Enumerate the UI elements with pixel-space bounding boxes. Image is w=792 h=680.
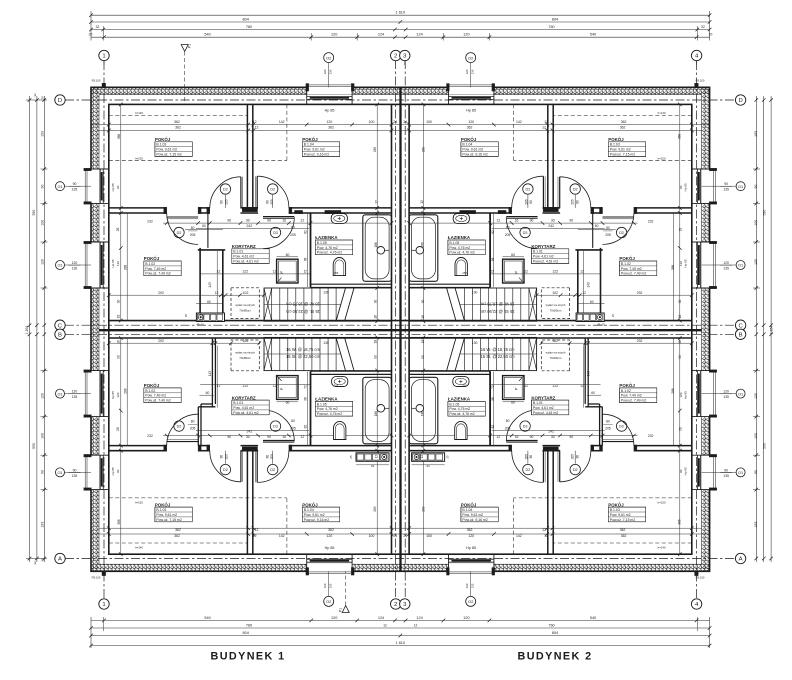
svg-text:232: 232	[648, 220, 654, 224]
svg-text:38: 38	[491, 397, 495, 401]
svg-text:590: 590	[32, 210, 36, 216]
svg-text:Hp 85: Hp 85	[466, 109, 476, 113]
svg-text:269: 269	[422, 506, 426, 512]
svg-text:80: 80	[219, 200, 223, 204]
svg-text:12: 12	[212, 339, 216, 343]
svg-text:12: 12	[420, 455, 424, 459]
svg-text:wyłaz na strych: wyłaz na strych	[235, 303, 255, 307]
svg-text:120: 120	[116, 261, 120, 266]
svg-text:POKÓJ: POKÓJ	[155, 502, 171, 507]
svg-text:B: B	[58, 332, 62, 338]
svg-text:Pow.uż. 4,76 m2: Pow.uż. 4,76 m2	[317, 412, 343, 416]
svg-text:205: 205	[224, 454, 228, 460]
svg-text:A: A	[739, 557, 743, 563]
svg-text:20: 20	[41, 96, 45, 100]
svg-text:B.1.04: B.1.04	[462, 143, 472, 147]
svg-text:12: 12	[544, 534, 548, 538]
svg-text:120: 120	[465, 583, 469, 588]
svg-text:242: 242	[548, 430, 554, 434]
svg-text:12: 12	[300, 219, 304, 223]
svg-text:D2: D2	[573, 188, 578, 192]
svg-text:12: 12	[544, 120, 548, 124]
svg-text:ŁAZIENKA: ŁAZIENKA	[315, 397, 338, 402]
svg-text:135: 135	[471, 583, 475, 588]
svg-text:16 W. @ 18,75 cm: 16 W. @ 18,75 cm	[481, 347, 515, 352]
svg-text:205: 205	[505, 427, 511, 431]
svg-text:60: 60	[591, 391, 595, 395]
svg-text:Pow. 4,61 m2: Pow. 4,61 m2	[233, 406, 254, 410]
svg-text:90: 90	[754, 185, 758, 189]
svg-text:120: 120	[468, 534, 474, 538]
svg-text:Pow. 9,61 m2: Pow. 9,61 m2	[462, 148, 483, 152]
svg-text:90: 90	[267, 219, 271, 223]
svg-text:12: 12	[217, 270, 221, 274]
svg-text:100: 100	[41, 220, 45, 226]
svg-text:16: 16	[515, 435, 519, 439]
svg-text:90: 90	[373, 300, 377, 304]
svg-text:16: 16	[515, 219, 519, 223]
svg-text:Pow. 4,76 m2: Pow. 4,76 m2	[317, 407, 338, 411]
svg-text:D2: D2	[619, 425, 624, 429]
svg-text:80: 80	[291, 419, 295, 423]
svg-text:ŁAZIENKA: ŁAZIENKA	[315, 235, 338, 240]
svg-text:120: 120	[327, 534, 333, 538]
svg-text:760: 760	[548, 624, 554, 628]
svg-text:269: 269	[373, 147, 377, 153]
svg-text:193: 193	[41, 131, 45, 137]
svg-text:Hp 85: Hp 85	[111, 183, 115, 191]
svg-text:Hp 85: Hp 85	[111, 259, 115, 267]
svg-text:540: 540	[204, 616, 210, 620]
svg-text:60: 60	[595, 224, 599, 228]
svg-text:135: 135	[329, 583, 333, 588]
svg-text:38: 38	[491, 258, 495, 262]
svg-text:130: 130	[323, 291, 329, 295]
svg-text:120: 120	[116, 392, 120, 397]
svg-text:193: 193	[41, 522, 45, 528]
svg-text:B: B	[739, 332, 743, 338]
svg-text:O2: O2	[468, 55, 474, 60]
svg-text:B.1.02: B.1.02	[621, 262, 631, 266]
svg-text:366: 366	[677, 134, 681, 140]
svg-text:Pow. 9,61 m2: Pow. 9,61 m2	[156, 513, 177, 517]
svg-text:D: D	[58, 98, 62, 104]
svg-text:205: 205	[524, 454, 528, 460]
svg-text:120: 120	[679, 392, 683, 397]
svg-text:Pow.uż. 7,15 m2: Pow.uż. 7,15 m2	[610, 153, 636, 157]
svg-text:D2: D2	[573, 468, 578, 472]
svg-text:90: 90	[267, 435, 271, 439]
svg-text:80: 80	[606, 420, 610, 424]
svg-text:135: 135	[723, 266, 729, 270]
svg-text:Pow. 7,49 m2: Pow. 7,49 m2	[145, 394, 166, 398]
svg-text:90: 90	[41, 470, 45, 474]
svg-text:120: 120	[679, 261, 683, 266]
svg-text:12: 12	[253, 120, 257, 124]
svg-text:48x19: 48x19	[597, 322, 605, 326]
svg-text:242: 242	[247, 224, 253, 228]
svg-text:18: 18	[373, 340, 377, 344]
svg-text:255: 255	[462, 383, 467, 387]
svg-text:90: 90	[73, 182, 77, 186]
svg-text:Pow. 9,61 m2: Pow. 9,61 m2	[610, 513, 631, 517]
svg-text:Hp 85: Hp 85	[684, 467, 688, 475]
svg-text:122: 122	[552, 384, 558, 388]
svg-text:B.1.05: B.1.05	[317, 402, 327, 406]
svg-text:Hp 85: Hp 85	[466, 546, 476, 550]
svg-text:80: 80	[265, 455, 269, 459]
svg-text:24: 24	[393, 534, 397, 538]
svg-text:B.1.02: B.1.02	[145, 262, 155, 266]
svg-text:60: 60	[590, 300, 594, 304]
svg-text:18: 18	[678, 315, 682, 319]
svg-text:Pow. 9,61 m2: Pow. 9,61 m2	[610, 148, 631, 152]
svg-text:82: 82	[304, 230, 308, 234]
svg-text:32: 32	[33, 93, 37, 97]
svg-text:130: 130	[323, 341, 329, 345]
svg-text:90: 90	[421, 300, 425, 304]
svg-text:205: 205	[224, 199, 228, 205]
svg-text:80: 80	[506, 419, 510, 423]
svg-text:60: 60	[286, 400, 290, 404]
svg-text:Pow.uż. 7,49 m2: Pow.uż. 7,49 m2	[621, 272, 647, 276]
svg-text:362: 362	[175, 528, 181, 532]
svg-text:292: 292	[637, 339, 643, 343]
svg-text:25: 25	[184, 314, 188, 318]
svg-text:20: 20	[709, 33, 713, 37]
svg-text:90: 90	[754, 470, 758, 474]
svg-text:18: 18	[421, 340, 425, 344]
svg-text:R5:100: R5:100	[92, 79, 101, 83]
svg-text:90: 90	[116, 185, 120, 189]
svg-text:Hp 85: Hp 85	[684, 259, 688, 267]
svg-text:205: 205	[570, 199, 574, 205]
svg-text:P: P	[514, 271, 519, 274]
svg-text:30: 30	[551, 435, 555, 439]
svg-text:90: 90	[73, 468, 77, 472]
svg-text:12: 12	[582, 291, 586, 295]
svg-text:120: 120	[323, 69, 327, 74]
svg-text:20: 20	[89, 33, 93, 37]
svg-text:70x80cm: 70x80cm	[550, 309, 562, 313]
svg-text:D2: D2	[223, 188, 228, 192]
svg-text:24: 24	[403, 120, 407, 124]
svg-text:186: 186	[374, 411, 378, 417]
svg-text:205: 205	[605, 233, 611, 237]
svg-text:O1: O1	[738, 392, 743, 396]
svg-text:90: 90	[679, 469, 683, 473]
svg-text:90: 90	[227, 219, 231, 223]
svg-text:P: P	[514, 387, 519, 390]
svg-text:B.1.04: B.1.04	[304, 143, 314, 147]
svg-text:120: 120	[72, 261, 78, 265]
svg-text:135: 135	[72, 395, 78, 399]
svg-text:Pow.uż. 9,16 m2: Pow.uż. 9,16 m2	[304, 518, 330, 522]
svg-text:255: 255	[334, 383, 339, 387]
svg-text:16 W. @ 18,75 cm: 16 W. @ 18,75 cm	[286, 302, 320, 307]
svg-text:804: 804	[243, 631, 249, 635]
svg-text:12: 12	[420, 200, 424, 204]
svg-text:POKÓJ: POKÓJ	[461, 137, 477, 142]
svg-text:KORYTARZ: KORYTARZ	[531, 244, 555, 249]
svg-text:255: 255	[334, 271, 339, 275]
svg-text:362: 362	[174, 120, 180, 124]
svg-text:28: 28	[679, 427, 683, 431]
svg-text:205: 205	[524, 199, 528, 205]
svg-text:P1: P1	[339, 608, 343, 612]
svg-text:h=140: h=140	[658, 545, 666, 549]
svg-text:h=220: h=220	[658, 500, 666, 504]
svg-text:362: 362	[467, 126, 473, 130]
svg-text:B.1.04: B.1.04	[462, 508, 472, 512]
svg-text:362: 362	[620, 528, 626, 532]
svg-text:B.1.05: B.1.05	[449, 402, 459, 406]
svg-text:B.1.01: B.1.01	[533, 401, 543, 405]
svg-text:80: 80	[575, 455, 579, 459]
svg-text:590: 590	[762, 210, 766, 216]
svg-text:232: 232	[147, 434, 153, 438]
svg-text:R5:100: R5:100	[696, 576, 705, 580]
svg-text:D2: D2	[526, 188, 531, 192]
svg-text:90: 90	[678, 300, 682, 304]
svg-text:Pow.uż. 9,16 m2: Pow.uż. 9,16 m2	[304, 153, 330, 157]
svg-text:Pow. 4,76 m2: Pow. 4,76 m2	[317, 246, 338, 250]
svg-text:242: 242	[247, 430, 253, 434]
svg-text:100: 100	[754, 220, 758, 226]
svg-text:12: 12	[375, 200, 379, 204]
svg-text:18: 18	[117, 340, 121, 344]
svg-text:O1: O1	[738, 264, 743, 268]
svg-text:Hp 85: Hp 85	[111, 467, 115, 475]
svg-text:362: 362	[328, 528, 334, 532]
svg-text:Pow.uż. 4,76 m2: Pow.uż. 4,76 m2	[449, 412, 475, 416]
svg-text:O1: O1	[57, 392, 62, 396]
svg-text:82: 82	[491, 425, 495, 429]
svg-text:Pow. 4,76 m2: Pow. 4,76 m2	[449, 407, 470, 411]
svg-text:Hp 85: Hp 85	[684, 183, 688, 191]
svg-text:B.1.01: B.1.01	[233, 250, 243, 254]
svg-text:Pow. 9,61 m2: Pow. 9,61 m2	[462, 513, 483, 517]
svg-text:120: 120	[331, 616, 337, 620]
svg-text:D2: D2	[177, 231, 182, 235]
svg-text:80: 80	[529, 200, 533, 204]
svg-text:80: 80	[265, 200, 269, 204]
svg-text:15 St. @ 22,50 cm: 15 St. @ 22,50 cm	[286, 354, 321, 359]
svg-text:120: 120	[723, 261, 729, 265]
svg-text:1: 1	[102, 602, 105, 608]
svg-text:90: 90	[41, 185, 45, 189]
svg-text:Pow. 9,61 m2: Pow. 9,61 m2	[304, 513, 325, 517]
svg-text:15 St. @ 22,50 cm: 15 St. @ 22,50 cm	[480, 309, 515, 314]
svg-text:120: 120	[463, 616, 469, 620]
svg-text:1 610: 1 610	[396, 641, 406, 645]
svg-text:90: 90	[373, 355, 377, 359]
svg-text:122: 122	[552, 270, 558, 274]
svg-text:102: 102	[243, 339, 249, 343]
svg-text:288: 288	[124, 265, 128, 271]
svg-text:D2: D2	[177, 425, 182, 429]
svg-text:18: 18	[678, 340, 682, 344]
svg-text:205: 205	[570, 454, 574, 460]
svg-text:16: 16	[282, 219, 286, 223]
svg-text:Pow. 4,61 m2: Pow. 4,61 m2	[533, 255, 554, 259]
svg-text:Pow.uż. 7,49 m2: Pow.uż. 7,49 m2	[145, 272, 171, 276]
svg-text:366: 366	[677, 519, 681, 525]
svg-text:90: 90	[724, 468, 728, 472]
svg-text:1: 1	[102, 54, 105, 60]
svg-text:90: 90	[679, 185, 683, 189]
svg-text:O1: O1	[57, 471, 62, 475]
svg-text:wyłaz na strych: wyłaz na strych	[546, 351, 566, 355]
svg-text:124: 124	[416, 33, 422, 37]
svg-text:KORYTARZ: KORYTARZ	[232, 244, 256, 249]
svg-text:90: 90	[116, 469, 120, 473]
svg-text:Pow.uż. 4,61 m2: Pow.uż. 4,61 m2	[233, 260, 259, 264]
svg-text:142: 142	[279, 120, 285, 124]
svg-text:Pow. 4,61 m2: Pow. 4,61 m2	[533, 406, 554, 410]
svg-text:82: 82	[491, 230, 495, 234]
svg-text:143: 143	[208, 371, 212, 377]
svg-text:70x80cm: 70x80cm	[550, 356, 562, 360]
svg-text:362: 362	[621, 120, 627, 124]
svg-text:30: 30	[246, 219, 250, 223]
svg-text:72: 72	[304, 385, 308, 389]
svg-text:90: 90	[678, 355, 682, 359]
svg-text:POKÓJ: POKÓJ	[461, 502, 477, 507]
svg-text:72: 72	[491, 270, 495, 274]
svg-text:100: 100	[369, 120, 375, 124]
svg-text:362: 362	[174, 534, 180, 538]
svg-text:Pow. 7,49 m2: Pow. 7,49 m2	[145, 267, 166, 271]
svg-text:KORYTARZ: KORYTARZ	[232, 395, 256, 400]
svg-text:D3: D3	[523, 231, 528, 235]
svg-text:186: 186	[374, 242, 378, 248]
svg-text:12: 12	[542, 126, 546, 130]
svg-text:38: 38	[304, 397, 308, 401]
svg-text:12: 12	[253, 534, 257, 538]
svg-text:590: 590	[762, 443, 766, 449]
svg-text:60: 60	[202, 224, 206, 228]
svg-text:80: 80	[506, 226, 510, 230]
svg-text:90: 90	[421, 355, 425, 359]
svg-text:O1: O1	[738, 185, 743, 189]
svg-text:25: 25	[349, 455, 353, 459]
svg-text:90: 90	[227, 435, 231, 439]
svg-text:136: 136	[471, 69, 475, 74]
svg-text:POKÓJ: POKÓJ	[144, 256, 160, 261]
svg-text:P: P	[279, 387, 284, 390]
svg-text:100: 100	[41, 433, 45, 439]
svg-text:Pow.uż. 4,76 m2: Pow.uż. 4,76 m2	[317, 251, 343, 255]
svg-text:Pow.uż. 7,49 m2: Pow.uż. 7,49 m2	[145, 399, 171, 403]
svg-text:135: 135	[72, 474, 78, 478]
svg-text:60: 60	[286, 253, 290, 257]
svg-text:120: 120	[465, 69, 469, 74]
svg-text:205: 205	[505, 233, 511, 237]
svg-text:80: 80	[529, 455, 533, 459]
svg-text:D2: D2	[270, 468, 275, 472]
svg-text:124: 124	[378, 616, 384, 620]
svg-text:POKÓJ: POKÓJ	[302, 502, 318, 507]
svg-text:72: 72	[491, 385, 495, 389]
svg-text:KORYTARZ: KORYTARZ	[531, 395, 555, 400]
svg-text:D3: D3	[523, 425, 528, 429]
svg-text:Pow.uż. 4,61 m2: Pow.uż. 4,61 m2	[233, 411, 259, 415]
svg-text:90: 90	[569, 435, 573, 439]
svg-text:100: 100	[426, 120, 432, 124]
svg-text:90: 90	[530, 219, 534, 223]
svg-text:205: 205	[605, 427, 611, 431]
svg-text:362: 362	[621, 534, 627, 538]
svg-text:120: 120	[468, 120, 474, 124]
svg-text:B.1.05: B.1.05	[317, 241, 327, 245]
svg-text:30: 30	[246, 435, 250, 439]
svg-text:28: 28	[116, 427, 120, 431]
svg-text:POKÓJ: POKÓJ	[619, 256, 635, 261]
svg-text:90: 90	[117, 300, 121, 304]
svg-text:h=140: h=140	[135, 545, 143, 549]
svg-text:16: 16	[282, 435, 286, 439]
svg-text:186: 186	[421, 411, 425, 417]
svg-text:25: 25	[611, 314, 615, 318]
svg-text:BUDYNEK 1: BUDYNEK 1	[211, 651, 286, 663]
svg-text:205: 205	[290, 427, 296, 431]
svg-text:122: 122	[242, 270, 248, 274]
svg-text:102: 102	[552, 291, 558, 295]
svg-text:2: 2	[394, 54, 397, 60]
svg-text:288: 288	[671, 388, 675, 394]
svg-text:804: 804	[243, 17, 249, 21]
svg-text:186: 186	[421, 242, 425, 248]
svg-text:60: 60	[206, 391, 210, 395]
svg-text:wyłaz na strych: wyłaz na strych	[546, 303, 566, 307]
svg-text:h=220: h=220	[135, 156, 143, 160]
svg-text:136: 136	[329, 69, 333, 74]
svg-text:93: 93	[371, 464, 375, 468]
svg-text:80: 80	[191, 226, 195, 230]
svg-text:804: 804	[552, 631, 558, 635]
svg-text:48x19: 48x19	[196, 322, 204, 326]
svg-text:POKÓJ: POKÓJ	[619, 383, 635, 388]
svg-text:POKÓJ: POKÓJ	[144, 383, 160, 388]
svg-text:70x80cm: 70x80cm	[239, 356, 251, 360]
svg-text:12: 12	[255, 528, 259, 532]
svg-text:366: 366	[117, 519, 121, 525]
svg-text:135: 135	[723, 188, 729, 192]
svg-text:205: 205	[190, 427, 196, 431]
svg-text:A: A	[58, 557, 62, 563]
svg-text:h=220: h=220	[658, 156, 666, 160]
svg-text:80: 80	[191, 420, 195, 424]
svg-text:60: 60	[207, 300, 211, 304]
svg-text:120: 120	[72, 390, 78, 394]
svg-text:232: 232	[648, 434, 654, 438]
svg-text:B.1.02: B.1.02	[621, 389, 631, 393]
svg-text:12: 12	[273, 384, 277, 388]
svg-text:Hp 85: Hp 85	[684, 391, 688, 399]
svg-text:O1: O1	[738, 471, 743, 475]
svg-text:30: 30	[551, 219, 555, 223]
svg-text:12: 12	[542, 528, 546, 532]
svg-text:292: 292	[158, 291, 164, 295]
svg-text:362: 362	[467, 528, 473, 532]
svg-text:232: 232	[147, 220, 153, 224]
svg-text:B.1.03: B.1.03	[610, 508, 620, 512]
svg-text:80: 80	[291, 226, 295, 230]
svg-text:D2: D2	[526, 468, 531, 472]
svg-text:38: 38	[304, 258, 308, 262]
svg-text:82: 82	[304, 425, 308, 429]
